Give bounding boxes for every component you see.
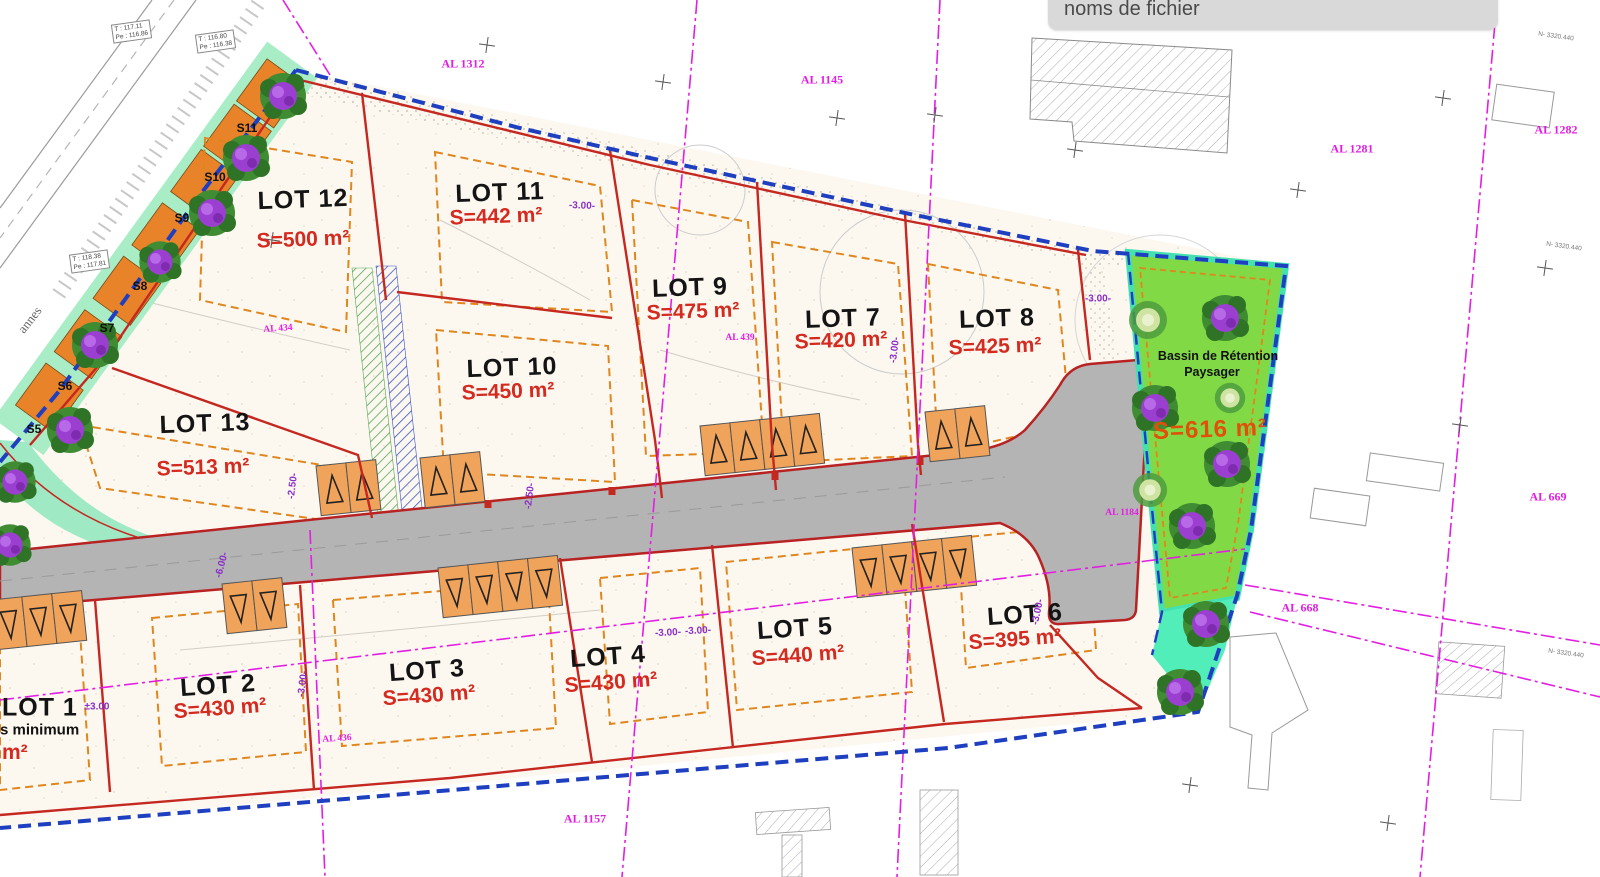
- parcel-al-1312: AL 1312: [441, 57, 484, 72]
- parcel-al-1184: AL 1184: [1105, 508, 1139, 518]
- parcel-al-436: AL 436: [322, 733, 352, 745]
- parcel-al-434: AL 434: [263, 323, 293, 335]
- lot-7-area: S=420 m²: [794, 327, 888, 354]
- lot-8-area: S=425 m²: [948, 333, 1042, 360]
- basin-name-line1: Bassin de Rétention: [1158, 349, 1278, 363]
- strip-section-s5: S5: [27, 422, 42, 436]
- plan-viewer: LOT 12 S=500 m² LOT 11 S=442 m² LOT 10 S…: [0, 0, 1600, 877]
- dim-label: -3.00-: [655, 627, 682, 639]
- lot-13-area: S=513 m²: [156, 454, 250, 481]
- basin-area: S=616 m²: [1153, 414, 1268, 446]
- parcel-al-1281: AL 1281: [1330, 142, 1373, 157]
- strip-section-s9: S9: [175, 211, 190, 225]
- dim-label: ±3.00: [85, 702, 110, 713]
- lot-10-area: S=450 m²: [461, 378, 555, 405]
- strip-section-s10: S10: [204, 170, 225, 184]
- filename-input[interactable]: noms de fichier: [1048, 0, 1498, 30]
- strip-section-s8: S8: [133, 279, 148, 293]
- lot-1-note: s minimum: [0, 722, 79, 739]
- parcel-al-668: AL 668: [1281, 601, 1318, 616]
- lot-9-area: S=475 m²: [646, 298, 740, 325]
- dim-label: -3.00-: [569, 200, 595, 212]
- strip-section-s6: S6: [58, 379, 73, 393]
- filename-input-value: noms de fichier: [1064, 0, 1200, 20]
- parcel-al-1157: AL 1157: [564, 812, 606, 827]
- dim-label: -3.00-: [685, 625, 712, 637]
- basin-name-line2: Paysager: [1184, 365, 1240, 379]
- parcel-al-1145: AL 1145: [801, 73, 843, 88]
- parcel-al-669: AL 669: [1529, 490, 1566, 505]
- parcel-al-439: AL 439: [725, 333, 754, 343]
- strip-section-s11: S11: [237, 121, 258, 135]
- lot-8-label: LOT 8: [959, 303, 1036, 335]
- dim-label: -3.00-: [1085, 294, 1111, 305]
- lot-13-label: LOT 13: [159, 408, 251, 440]
- lot-5-label: LOT 5: [756, 612, 834, 646]
- lot-12-area: S=500 m²: [256, 226, 350, 253]
- strip-section-s7: S7: [100, 321, 115, 335]
- lot-12-label: LOT 12: [257, 184, 349, 216]
- lot-1-label: LOT 1: [2, 694, 78, 723]
- lot-1-area-fragment: m²: [2, 741, 28, 765]
- lot-11-area: S=442 m²: [449, 203, 543, 230]
- parcel-al-1282: AL 1282: [1534, 123, 1577, 138]
